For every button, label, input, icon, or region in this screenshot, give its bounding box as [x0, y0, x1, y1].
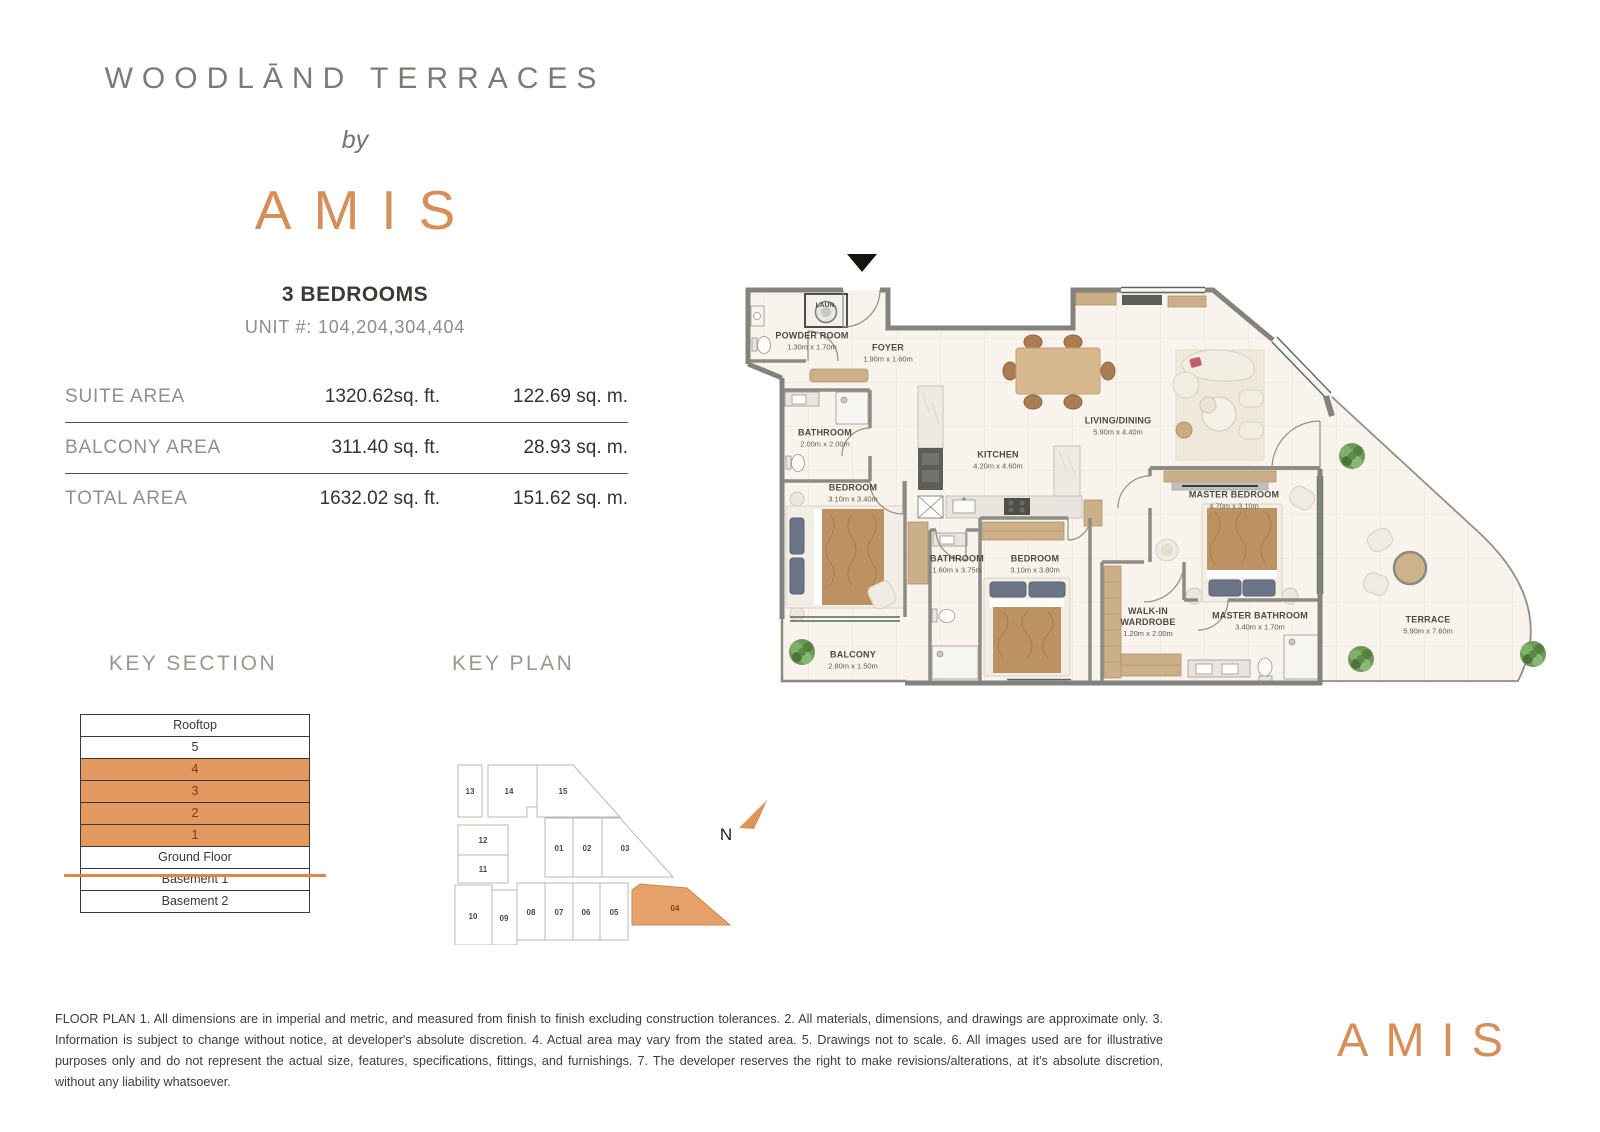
unit-number: 15 [559, 787, 568, 796]
key-section-floor-2: 2 [80, 802, 310, 825]
unit-number: 14 [505, 787, 514, 796]
key-section-title: KEY SECTION [78, 652, 308, 676]
unit-number: 10 [469, 912, 478, 921]
floor-plan: POWDER ROOM 1.30m x 1.70m FOYER 1.90m x … [720, 250, 1560, 700]
area-table: SUITE AREA 1320.62sq. ft. 122.69 sq. m. … [65, 372, 628, 524]
area-imperial-value: 311.40 sq. ft. [265, 437, 440, 459]
floor-label: Ground Floor [158, 850, 232, 864]
floor-label: 2 [192, 806, 199, 820]
floor-label: 5 [192, 740, 199, 754]
north-arrow-icon: N [720, 800, 767, 844]
entry-marker-icon [847, 254, 877, 272]
key-plan-unit-03 [602, 818, 673, 877]
floor-plan-drawing [720, 250, 1560, 700]
floor-fill [748, 290, 1531, 683]
unit-number: 13 [466, 787, 475, 796]
area-row-suite: SUITE AREA 1320.62sq. ft. 122.69 sq. m. [65, 372, 628, 422]
area-imperial-value: 1632.02 sq. ft. [265, 488, 440, 510]
floor-label: 3 [192, 784, 199, 798]
area-label: BALCONY AREA [65, 437, 265, 459]
floor-label: Rooftop [173, 718, 217, 732]
area-metric-value: 28.93 sq. m. [440, 437, 628, 459]
key-section-floor-basement-2: Basement 2 [80, 890, 310, 913]
sofa-set [1173, 350, 1264, 460]
unit-number: 11 [479, 865, 488, 874]
ground-level-highlight-line [64, 874, 326, 877]
key-section-floor-ground: Ground Floor [80, 846, 310, 869]
unit-number: 05 [610, 908, 619, 917]
brand-logo-top: AMIS [75, 178, 635, 242]
project-title: WOODLĀND TERRACES [75, 62, 635, 96]
key-section-floor-rooftop: Rooftop [80, 714, 310, 737]
unit-number: 08 [527, 908, 536, 917]
floor-label: Basement 2 [162, 894, 229, 908]
key-plan-unit-15 [537, 765, 620, 817]
key-section-floor-3: 3 [80, 780, 310, 803]
unit-number: 09 [500, 914, 509, 923]
floor-label: 1 [192, 828, 199, 842]
key-section-floor-5: 5 [80, 736, 310, 759]
unit-number: 02 [583, 844, 592, 853]
unit-number: 01 [555, 844, 564, 853]
unit-number: 12 [479, 836, 488, 845]
key-section-floor-4: 4 [80, 758, 310, 781]
bed-bedroom-1 [786, 492, 906, 621]
key-plan-drawing: 13 14 15 12 11 01 02 03 10 09 08 07 06 0… [445, 745, 775, 945]
unit-numbers: UNIT #: 104,204,304,404 [75, 317, 635, 338]
north-label: N [720, 825, 732, 844]
area-label: SUITE AREA [65, 386, 265, 408]
unit-type-title: 3 BEDROOMS [75, 283, 635, 307]
unit-number: 07 [555, 908, 564, 917]
floor-label: 4 [192, 762, 199, 776]
key-plan-unit-04-highlighted [632, 884, 730, 925]
unit-number: 06 [582, 908, 591, 917]
key-plan-title: KEY PLAN [452, 652, 682, 676]
by-label: by [75, 126, 635, 155]
footer-disclaimer: FLOOR PLAN 1. All dimensions are in impe… [55, 1009, 1163, 1093]
area-label: TOTAL AREA [65, 488, 265, 510]
key-section-floor-basement-1: Basement 1 [80, 868, 310, 891]
unit-number: 03 [621, 844, 630, 853]
area-row-balcony: BALCONY AREA 311.40 sq. ft. 28.93 sq. m. [65, 422, 628, 473]
area-row-total: TOTAL AREA 1632.02 sq. ft. 151.62 sq. m. [65, 473, 628, 524]
key-section-floor-1: 1 [80, 824, 310, 847]
foyer-console [810, 369, 868, 382]
key-section-table: Rooftop 5 4 3 2 1 Ground Floor Basement … [80, 714, 310, 913]
laundry-closet [805, 294, 847, 327]
area-imperial-value: 1320.62sq. ft. [265, 386, 440, 408]
area-metric-value: 151.62 sq. m. [440, 488, 628, 510]
area-metric-value: 122.69 sq. m. [440, 386, 628, 408]
unit-number-highlighted: 04 [671, 904, 680, 913]
brand-logo-bottom: AMIS [1300, 1012, 1540, 1067]
